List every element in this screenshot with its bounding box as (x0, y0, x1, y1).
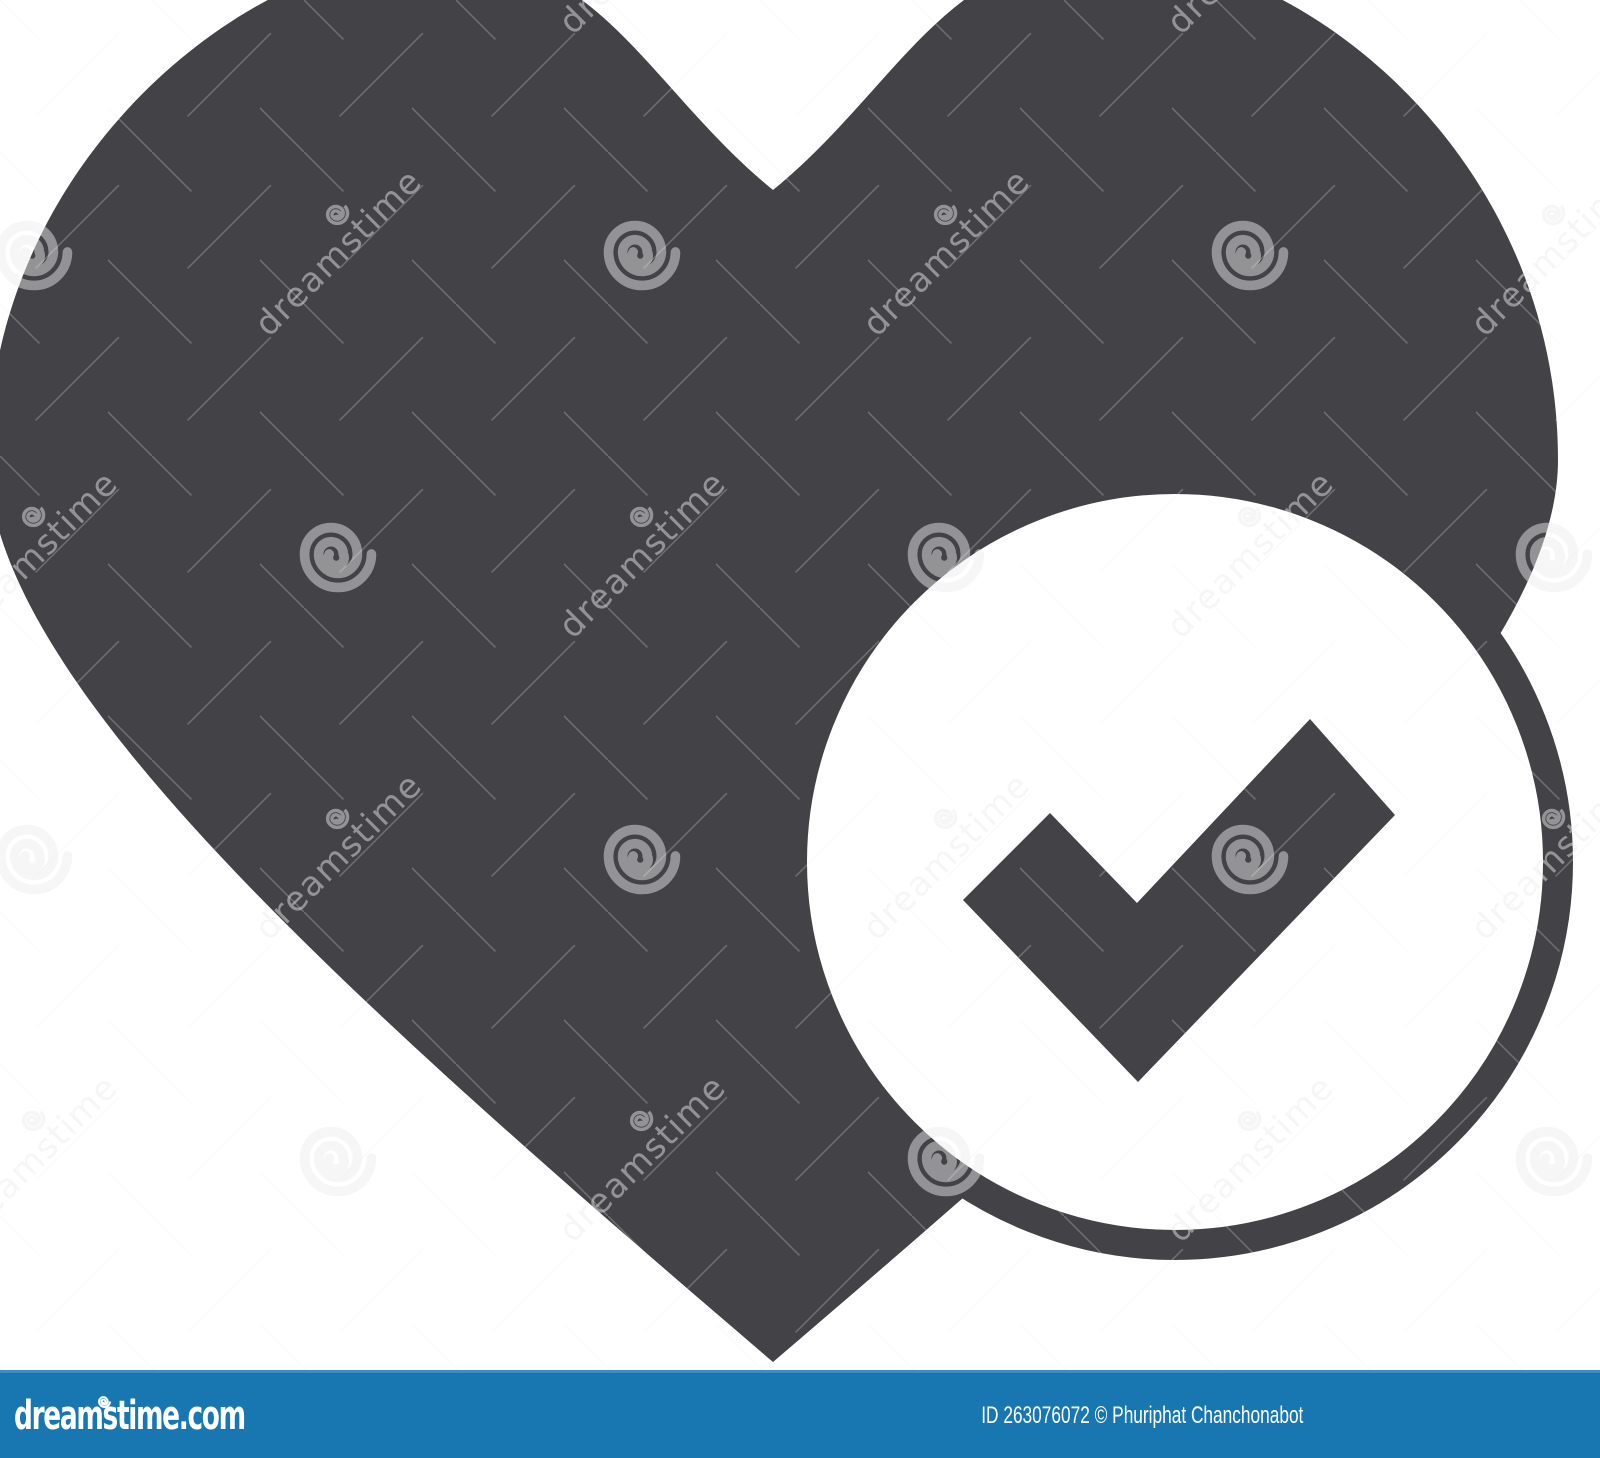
stock-image-preview: dreamstimedreamstimedreamstimedreamstime… (0, 0, 1600, 1458)
dreamstime-logo-text: dreamstime.com (14, 1393, 245, 1439)
heart-check-illustration: dreamstimedreamstimedreamstimedreamstime… (0, 0, 1600, 1370)
footer-bar: dreamstime.com ID 263076072 © Phuriphat … (0, 1370, 1600, 1458)
dreamstime-logo: dreamstime.com (14, 1373, 364, 1458)
watermark-crosshatch (0, 0, 1600, 1370)
image-credit: ID 263076072 © Phuriphat Chanchonabot (981, 1373, 1303, 1458)
spiral-icon (97, 1394, 112, 1409)
